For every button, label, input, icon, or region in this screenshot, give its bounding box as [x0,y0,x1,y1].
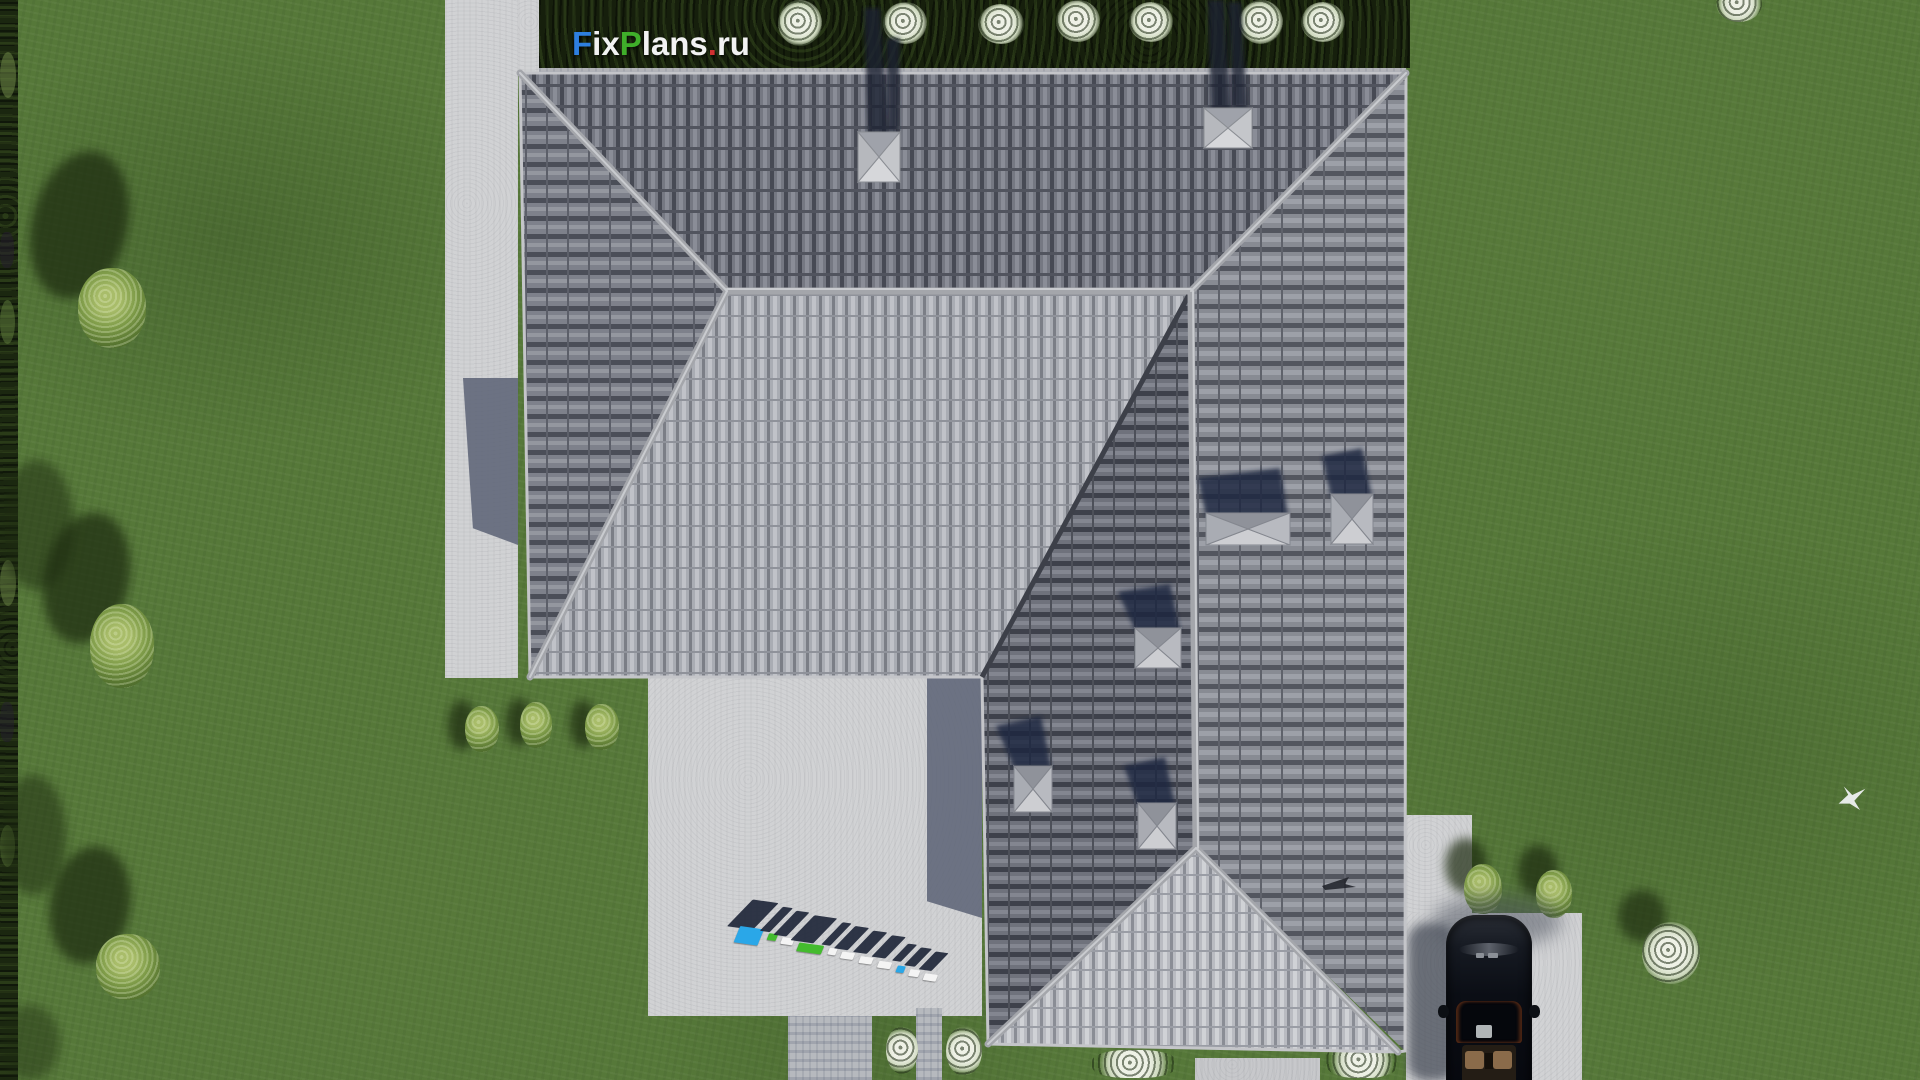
aerial-render-scene: FixPlans.ru [0,0,1920,1080]
chimney [1204,108,1252,148]
watermark-segment: . [708,25,717,62]
roof-vent [1206,513,1290,545]
watermark-segment: ix [592,25,620,62]
logo-letter-top [877,961,893,969]
logo-letter-top [840,951,856,959]
watermark-segment: ru [717,25,750,62]
roof-vent [1138,803,1176,849]
watermark-segment: lans [642,25,708,62]
roof-vent [1014,766,1052,812]
watermark-segment: P [620,25,642,62]
logo-letter-top [922,973,938,981]
logo-dot-blue [895,965,906,973]
logo-letter-top [827,948,838,956]
logo-letter-top [858,956,874,964]
watermark-logo: FixPlans.ru [572,27,750,60]
watermark-segment: F [572,25,592,62]
roof-vent [1331,494,1373,544]
house-roof [0,0,1920,1080]
logo-letter-top [908,969,921,977]
chimney [858,132,900,182]
roof-vent [1135,628,1181,668]
bird [1836,784,1870,814]
logo-letter-top-blue [734,926,764,946]
